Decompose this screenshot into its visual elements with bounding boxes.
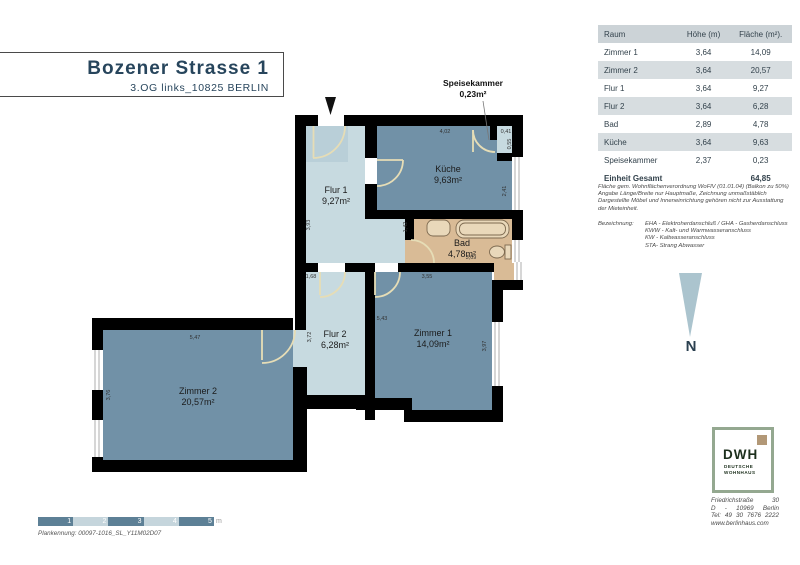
room-label-flur2: Flur 2 6,28m²: [291, 329, 379, 352]
col-header-raum: Raum: [598, 25, 678, 43]
dwh-logo: DWH DEUTSCHE WOHNHAUS: [712, 427, 774, 493]
room-label-flur1: Flur 1 9,27m²: [292, 185, 380, 208]
room-area: 6,28m²: [291, 340, 379, 351]
cell-raum: Bad: [598, 115, 678, 133]
cell-flaeche: 14,09: [729, 43, 792, 61]
room-name: Bad: [454, 238, 470, 248]
scale-segment: 5: [179, 517, 214, 526]
scale-segment: 3: [108, 517, 143, 526]
page-subtitle: 3.OG links_10825 BERLIN: [0, 82, 269, 94]
window-kueche: [512, 157, 523, 210]
abbreviation-legend: Bezeichnung: EHA - Elektroherdanschluß /…: [598, 221, 800, 250]
cell-hoehe: 3,64: [678, 133, 730, 151]
room-name: Flur 2: [323, 329, 346, 339]
legend-item: KW - Kaltwasseranschluss: [645, 235, 788, 242]
room-table: Raum Höhe (m) Fläche (m²). Zimmer 1 3,64…: [598, 25, 792, 187]
room-name: Zimmer 1: [414, 328, 452, 338]
table-row: Zimmer 2 3,64 20,57: [598, 61, 792, 79]
dim-bad-bottom: 3,09: [460, 255, 482, 261]
page-title: Bozener Strasse 1: [0, 58, 269, 80]
legend-item: STA- Strang Abwasser: [645, 243, 788, 250]
room-area: 14,09m²: [389, 339, 477, 350]
dim-kueche-top: 4,02: [434, 129, 456, 135]
table-row: Speisekammer 2,37 0,23: [598, 151, 792, 169]
dim-zimmer1-right: 3,97: [482, 335, 488, 357]
window-bad-ext: [514, 262, 524, 280]
dim-flur1-left: 3,93: [306, 214, 312, 236]
legend-item: KWW - Kalt- und Warmwasseranschluss: [645, 228, 788, 235]
room-name: Zimmer 2: [179, 386, 217, 396]
room-area: 9,63m²: [404, 175, 492, 186]
scale-unit: m: [214, 517, 222, 526]
table-row: Flur 2 3,64 6,28: [598, 97, 792, 115]
cell-flaeche: 9,63: [729, 133, 792, 151]
dim-zimmer2-left: 3,76: [106, 384, 112, 406]
dim-kueche-right: 2,41: [502, 180, 508, 202]
address-line: Friedrichstraße 30: [711, 497, 779, 505]
sink-icon: [427, 220, 450, 236]
speisekammer-name: Speisekammer: [443, 78, 503, 88]
cell-hoehe: 3,64: [678, 61, 730, 79]
address-line: Tel: 49 30 7676 2222: [711, 512, 779, 520]
note-line: Fläche gem. Wohnflächenverordnung WoFlV …: [598, 184, 798, 191]
cell-flaeche: 6,28: [729, 97, 792, 115]
room-name: Flur 1: [324, 185, 347, 195]
note-line: Dargestellte Möbel und Inneneinrichtung …: [598, 198, 798, 205]
table-row: Bad 2,89 4,78: [598, 115, 792, 133]
dim-flur2-top: 1,68: [300, 274, 322, 280]
north-label: N: [681, 338, 701, 355]
scale-bar: 1 2 3 4 5 m: [38, 517, 222, 526]
room-area: 20,57m²: [154, 397, 242, 408]
room-label-kueche: Küche 9,63m²: [404, 164, 492, 187]
room-area: 9,27m²: [292, 196, 380, 207]
plan-id: Plankennung: 00097-1016_SL_Y11M02D07: [38, 530, 161, 537]
cell-raum: Speisekammer: [598, 151, 678, 169]
room-label-zimmer2: Zimmer 2 20,57m²: [154, 386, 242, 409]
room-label-zimmer1: Zimmer 1 14,09m²: [389, 328, 477, 351]
speisekammer-area: 0,23m²: [460, 89, 487, 99]
col-header-hoehe: Höhe (m): [678, 25, 730, 43]
cell-raum: Küche: [598, 133, 678, 151]
room-name: Küche: [435, 164, 461, 174]
logo-name-line2: WOHNHAUS: [724, 470, 756, 476]
scale-segment: 4: [144, 517, 179, 526]
logo-acronym: DWH: [723, 447, 758, 462]
cell-flaeche: 20,57: [729, 61, 792, 79]
cell-raum: Zimmer 2: [598, 61, 678, 79]
table-header-row: Raum Höhe (m) Fläche (m²).: [598, 25, 792, 43]
legend-item: EHA - Elektroherdanschluß / GHA - Gasher…: [645, 221, 788, 228]
scale-segment: 1: [38, 517, 73, 526]
logo-company-name: DEUTSCHE WOHNHAUS: [724, 464, 756, 476]
cell-flaeche: 9,27: [729, 79, 792, 97]
dim-zimmer1-left: 5,43: [371, 316, 393, 322]
cell-flaeche: 0,23: [729, 151, 792, 169]
dim-spk-height: 0,55: [507, 133, 513, 155]
cell-raum: Flur 2: [598, 97, 678, 115]
dim-flur2-left: 3,72: [307, 326, 313, 348]
logo-tan-square-icon: [757, 435, 767, 445]
title-box: Bozener Strasse 1 3.OG links_10825 BERLI…: [0, 52, 284, 97]
table-row: Küche 3,64 9,63: [598, 133, 792, 151]
window-bad: [512, 240, 523, 262]
cell-hoehe: 3,64: [678, 97, 730, 115]
window-zimmer1: [492, 322, 503, 386]
cell-hoehe: 2,89: [678, 115, 730, 133]
address-line: www.berlinhaus.com: [711, 520, 779, 528]
table-row: Zimmer 1 3,64 14,09: [598, 43, 792, 61]
window-zimmer2-upper: [92, 350, 103, 390]
window-zimmer2-lower: [92, 420, 103, 457]
entry-door-swing-area: [306, 126, 348, 162]
legal-notes: Fläche gem. Wohnflächenverordnung WoFlV …: [598, 184, 798, 213]
note-line: der Mieteinheit.: [598, 206, 798, 213]
address-line: D - 10969 Berlin: [711, 505, 779, 513]
col-header-flaeche: Fläche (m²).: [729, 25, 792, 43]
room-zimmer1-ext-floor: [412, 398, 492, 410]
floorplan-page: Bozener Strasse 1 3.OG links_10825 BERLI…: [0, 0, 800, 565]
cell-raum: Zimmer 1: [598, 43, 678, 61]
cell-flaeche: 4,78: [729, 115, 792, 133]
dim-zimmer2-top: 5,47: [184, 335, 206, 341]
north-arrow-icon: [679, 273, 702, 337]
legend-label: Bezeichnung:: [598, 221, 645, 250]
cell-hoehe: 3,64: [678, 79, 730, 97]
cell-hoehe: 3,64: [678, 43, 730, 61]
note-line: Angabe Länge/Breite nur Hauptmaße, Zeich…: [598, 191, 798, 198]
entrance-arrow-icon: [325, 97, 336, 115]
speisekammer-callout: Speisekammer 0,23m²: [427, 78, 519, 99]
scale-segment: 2: [73, 517, 108, 526]
cell-raum: Flur 1: [598, 79, 678, 97]
legend-items: EHA - Elektroherdanschluß / GHA - Gasher…: [645, 221, 788, 250]
cell-hoehe: 2,37: [678, 151, 730, 169]
company-address: Friedrichstraße 30 D - 10969 Berlin Tel:…: [711, 497, 779, 527]
dim-zimmer1-top: 3,55: [416, 274, 438, 280]
table-row: Flur 1 3,64 9,27: [598, 79, 792, 97]
room-flur1-ext-floor: [365, 219, 405, 263]
room-bad-ext-floor: [494, 263, 514, 280]
dim-bad-left: 1,42: [403, 216, 409, 238]
